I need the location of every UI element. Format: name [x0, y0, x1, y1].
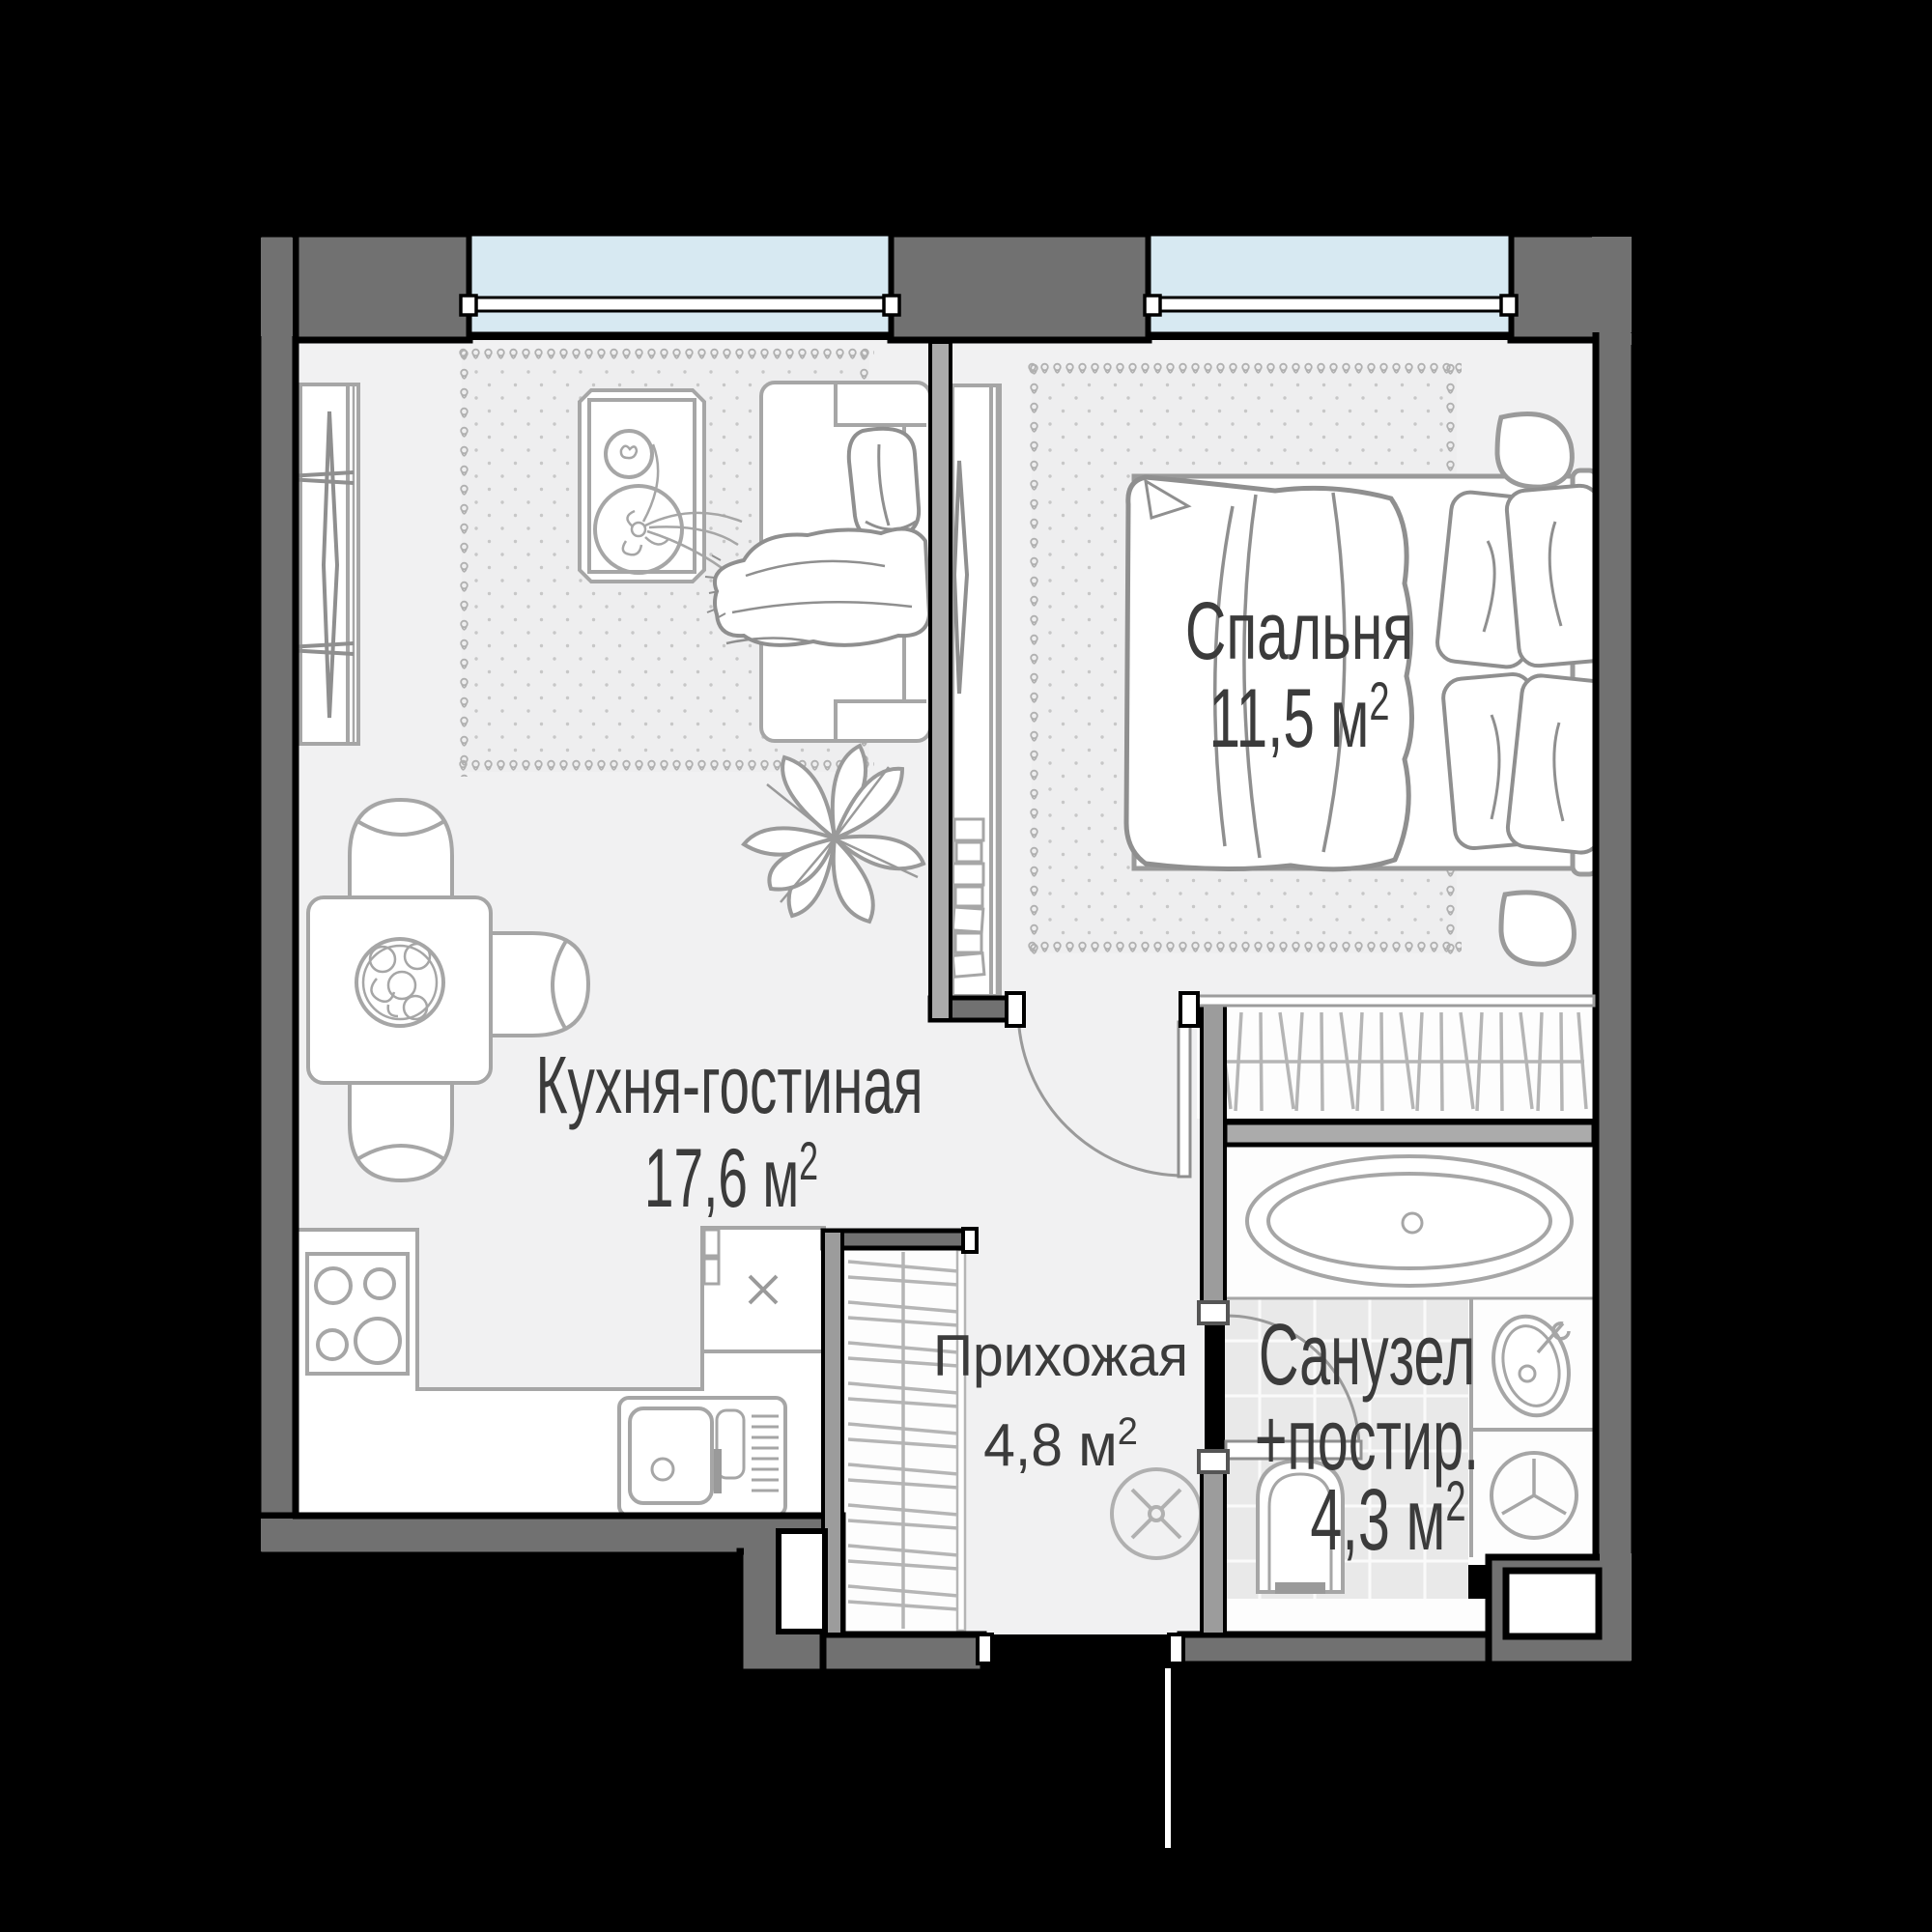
svg-text:Санузел: Санузел — [1259, 1307, 1475, 1404]
svg-text:4,8 м2: 4,8 м2 — [983, 1410, 1138, 1478]
svg-text:Прихожая: Прихожая — [933, 1324, 1188, 1389]
svg-text:Спальня: Спальня — [1185, 586, 1413, 677]
svg-text:11,5 м2: 11,5 м2 — [1208, 671, 1389, 765]
svg-text:17,6 м2: 17,6 м2 — [644, 1130, 818, 1225]
svg-text:Кухня-гостиная: Кухня-гостиная — [535, 1040, 923, 1131]
svg-text:4,3 м2: 4,3 м2 — [1310, 1471, 1465, 1569]
